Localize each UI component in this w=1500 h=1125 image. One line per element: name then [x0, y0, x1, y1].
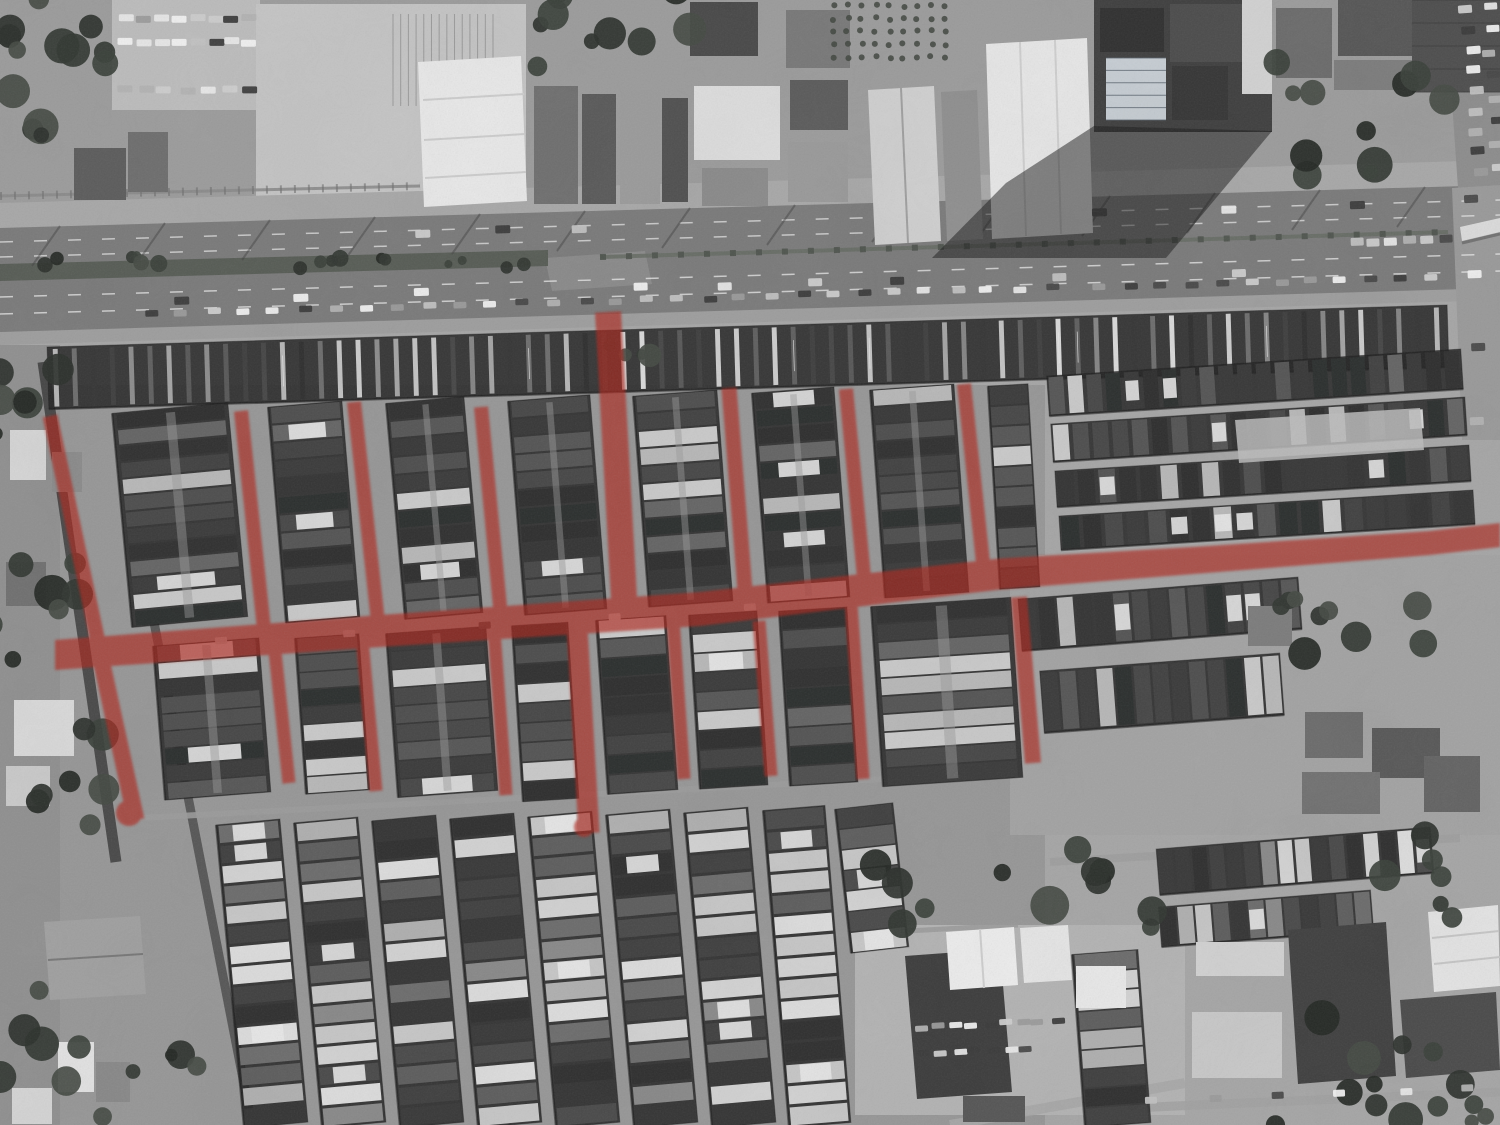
film-grain-layer: [0, 0, 1500, 1125]
aerial-map-figure: [0, 0, 1500, 1125]
map-canvas: [0, 0, 1500, 1125]
